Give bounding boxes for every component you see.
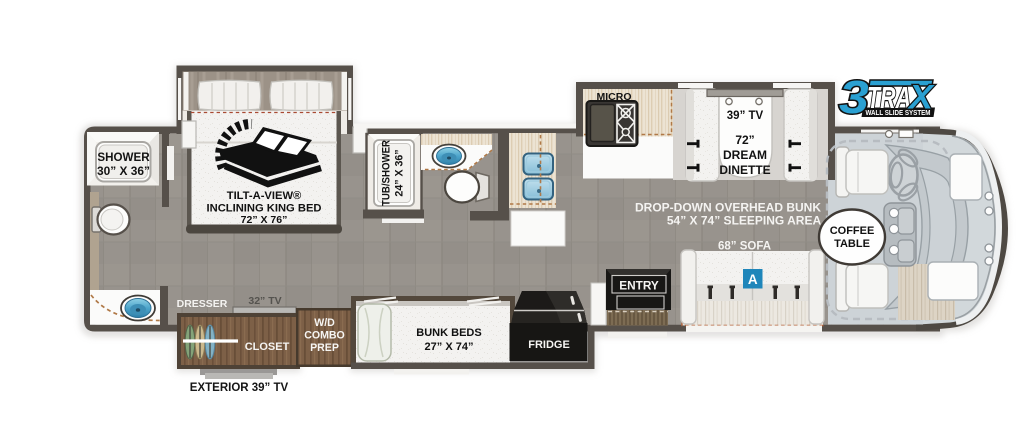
svg-text:3: 3: [839, 71, 869, 123]
svg-text:PREP: PREP: [310, 342, 339, 354]
svg-text:INCLINING KING BED: INCLINING KING BED: [207, 203, 322, 215]
svg-text:BUNK BEDS: BUNK BEDS: [416, 327, 481, 339]
svg-text:DINETTE: DINETTE: [719, 163, 770, 177]
svg-text:COMBO: COMBO: [304, 330, 345, 342]
svg-text:W/D: W/D: [314, 317, 335, 329]
svg-text:27” X 74”: 27” X 74”: [425, 341, 474, 353]
svg-text:TILT-A-VIEW®: TILT-A-VIEW®: [227, 190, 302, 202]
svg-text:FRIDGE: FRIDGE: [528, 339, 570, 351]
svg-text:39” TV: 39” TV: [727, 110, 764, 122]
svg-text:EXTERIOR 39” TV: EXTERIOR 39” TV: [190, 382, 289, 394]
svg-text:X: X: [907, 79, 936, 117]
svg-text:A: A: [748, 272, 758, 287]
svg-text:72” X 76”: 72” X 76”: [241, 214, 288, 226]
svg-text:54” X 74” SLEEPING AREA: 54” X 74” SLEEPING AREA: [667, 214, 822, 228]
svg-text:TUB/SHOWER: TUB/SHOWER: [381, 140, 393, 206]
svg-text:CLOSET: CLOSET: [245, 341, 290, 353]
svg-text:DRESSER: DRESSER: [177, 298, 228, 310]
svg-text:COFFEE: COFFEE: [830, 225, 875, 237]
svg-text:72”: 72”: [735, 133, 754, 147]
svg-text:24” X 36”: 24” X 36”: [394, 149, 406, 196]
svg-text:30” X 36”: 30” X 36”: [97, 165, 150, 178]
svg-text:ENTRY: ENTRY: [619, 279, 659, 293]
svg-text:TABLE: TABLE: [834, 238, 870, 250]
svg-text:SHOWER: SHOWER: [97, 151, 150, 164]
svg-text:DROP-DOWN OVERHEAD BUNK: DROP-DOWN OVERHEAD BUNK: [635, 201, 821, 215]
svg-text:32” TV: 32” TV: [248, 295, 281, 307]
svg-text:68” SOFA: 68” SOFA: [718, 241, 771, 253]
svg-text:TRA: TRA: [867, 80, 911, 115]
svg-text:DREAM: DREAM: [723, 148, 767, 162]
